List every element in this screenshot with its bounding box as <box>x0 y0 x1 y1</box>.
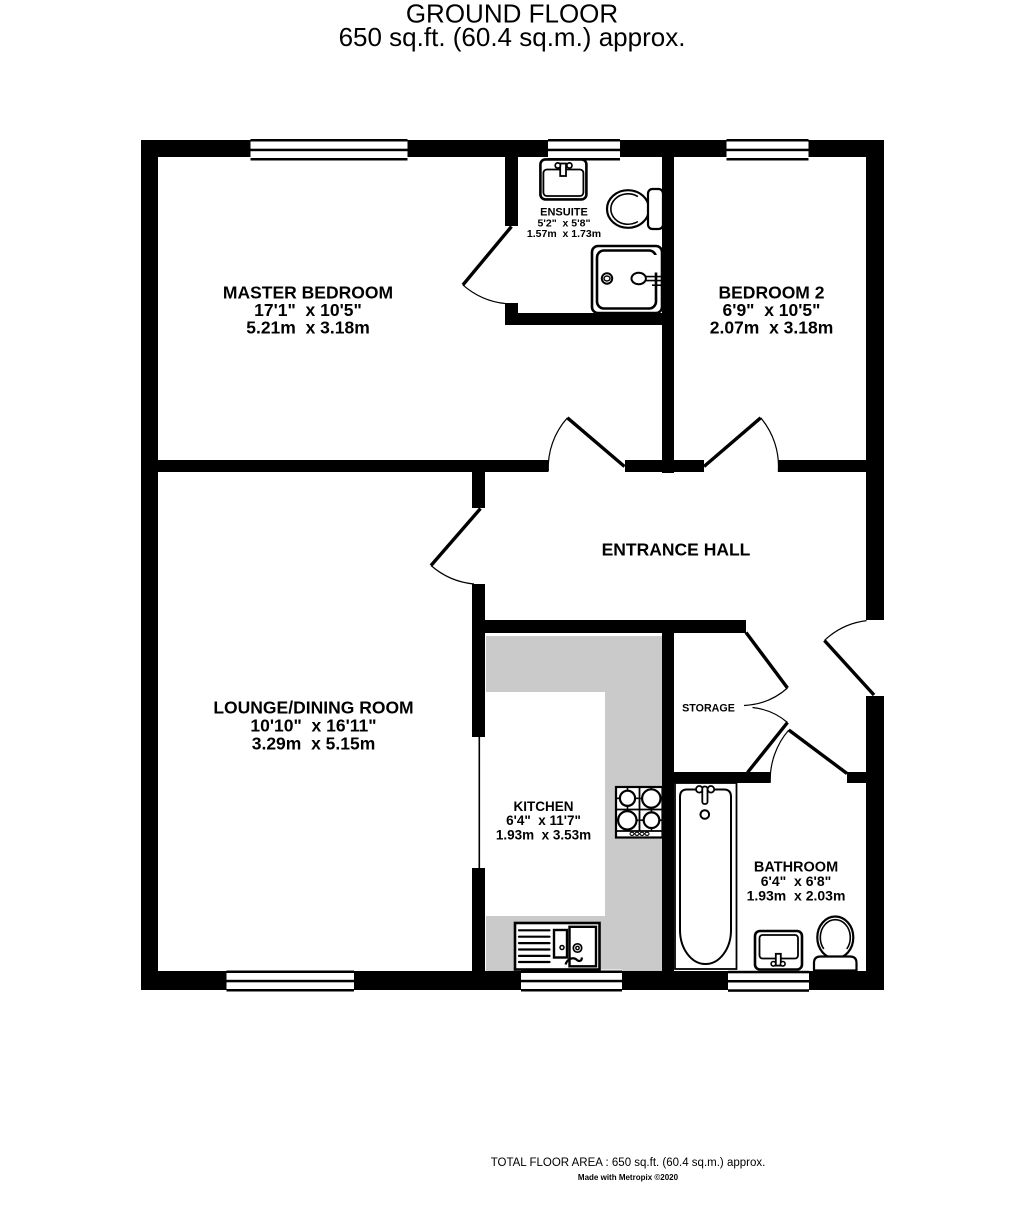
svg-text:TOTAL FLOOR AREA : 650 sq.ft.: TOTAL FLOOR AREA : 650 sq.ft. (60.4 sq.m… <box>491 1157 766 1169</box>
svg-text:3.29m x 5.15m: 3.29m x 5.15m <box>252 734 376 754</box>
svg-text:650 sq.ft. (60.4 sq.m.) approx: 650 sq.ft. (60.4 sq.m.) approx. <box>339 22 686 52</box>
svg-text:LOUNGE/DINING ROOM: LOUNGE/DINING ROOM <box>213 698 413 718</box>
svg-text:KITCHEN: KITCHEN <box>514 799 574 814</box>
svg-text:ENTRANCE HALL: ENTRANCE HALL <box>602 540 751 560</box>
svg-text:1.57m x 1.73m: 1.57m x 1.73m <box>527 228 601 240</box>
svg-text:6'4" x 11'7": 6'4" x 11'7" <box>506 813 581 828</box>
svg-text:5.21m x 3.18m: 5.21m x 3.18m <box>246 318 370 338</box>
svg-text:2.07m x 3.18m: 2.07m x 3.18m <box>710 318 834 338</box>
svg-text:10'10" x 16'11": 10'10" x 16'11" <box>250 716 376 736</box>
svg-text:STORAGE: STORAGE <box>682 703 735 715</box>
svg-text:1.93m x 3.53m: 1.93m x 3.53m <box>496 828 591 843</box>
svg-text:Made with Metropix ©2020: Made with Metropix ©2020 <box>578 1173 679 1182</box>
svg-text:1.93m x 2.03m: 1.93m x 2.03m <box>747 887 846 903</box>
